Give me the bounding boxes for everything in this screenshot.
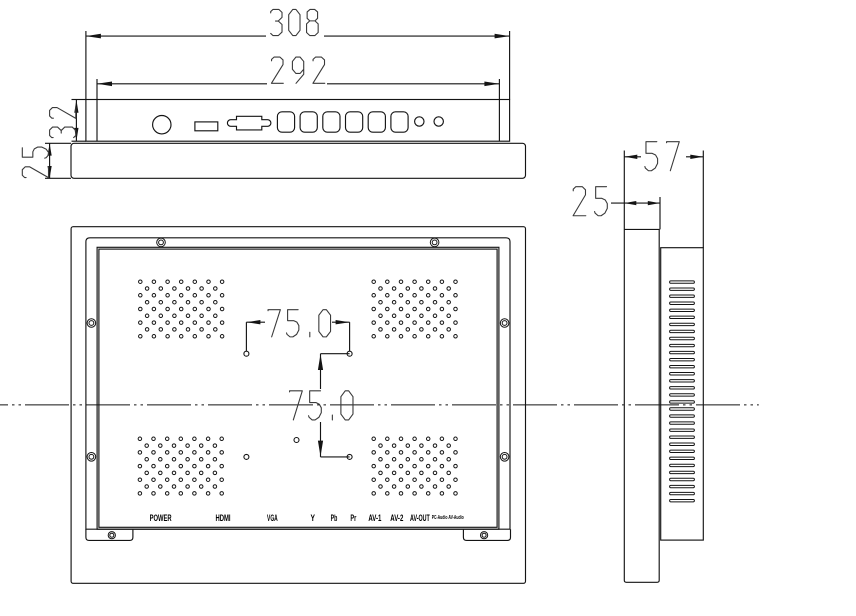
svg-text:Pb: Pb [331,513,338,523]
svg-text:AV-OUT: AV-OUT [410,513,430,523]
svg-text:VGA: VGA [267,513,278,523]
svg-text:Pr: Pr [350,513,356,523]
svg-text:AV-1: AV-1 [368,513,381,523]
svg-text:HDMI: HDMI [215,513,230,523]
svg-text:Y: Y [310,513,315,523]
svg-text:PC-Audio AV-Audio: PC-Audio AV-Audio [432,515,464,521]
svg-text:AV-2: AV-2 [390,513,403,523]
svg-text:POWER: POWER [150,513,172,523]
